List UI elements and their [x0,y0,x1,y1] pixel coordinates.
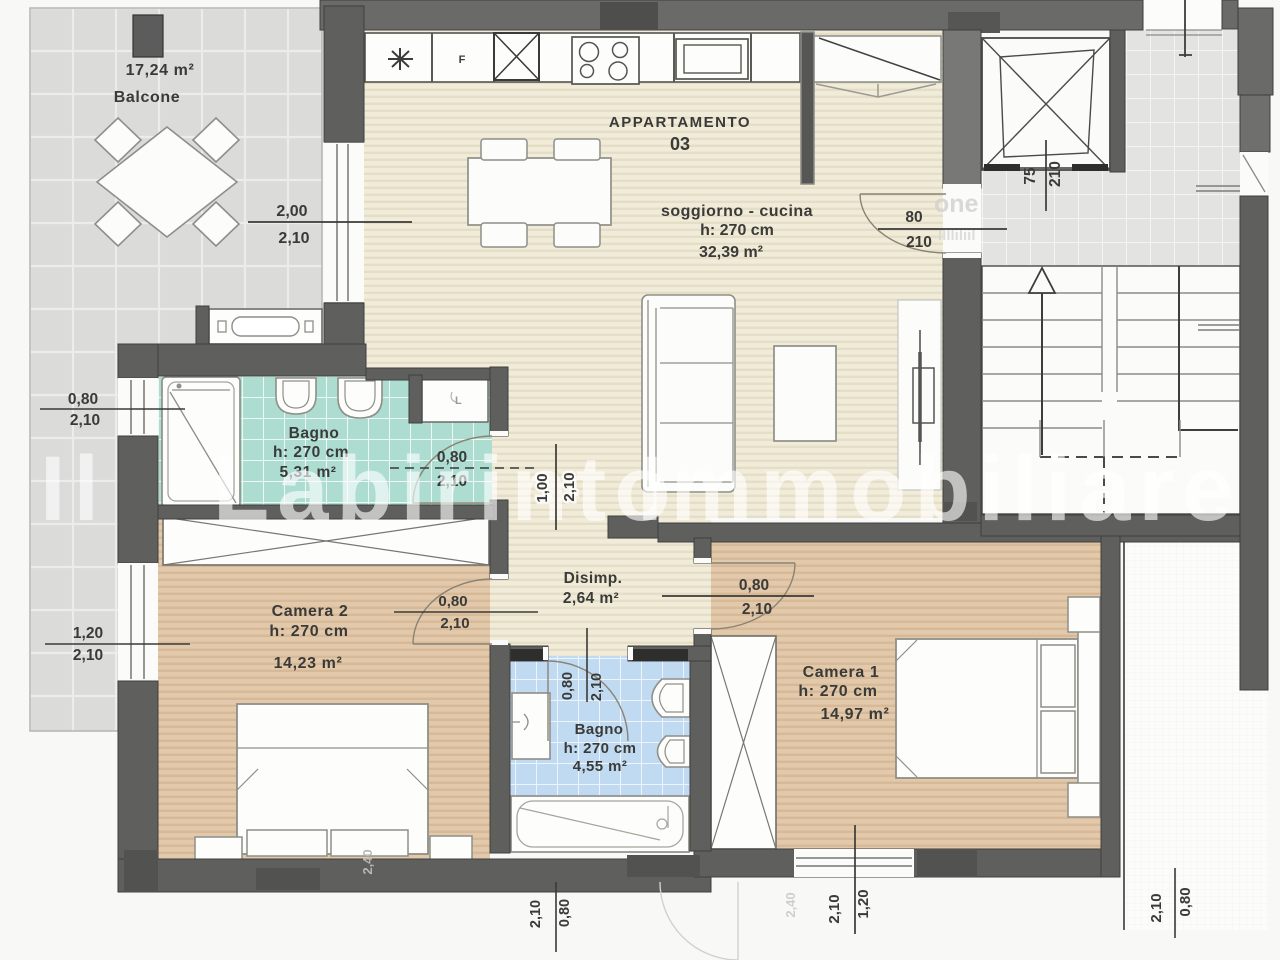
svg-text:14,97 m²: 14,97 m² [821,706,890,723]
svg-text:h: 270 cm: h: 270 cm [798,683,877,700]
svg-text:Camera 1: Camera 1 [803,664,880,681]
svg-text:soggiorno - cucina: soggiorno - cucina [661,203,813,220]
svg-text:0,80: 0,80 [438,593,467,610]
svg-text:2,40: 2,40 [783,892,798,917]
svg-text:2,10: 2,10 [589,673,605,701]
svg-text:Labirinto: Labirinto [213,438,679,540]
svg-text:Balcone: Balcone [114,89,180,106]
svg-text:h: 270 cm: h: 270 cm [700,222,774,239]
svg-text:Il: Il [40,438,107,540]
svg-text:2,10: 2,10 [440,615,469,632]
svg-text:14,23 m²: 14,23 m² [274,655,343,672]
svg-text:2,64 m²: 2,64 m² [563,590,619,607]
svg-text:32,39 m²: 32,39 m² [699,244,763,261]
svg-text:Camera 2: Camera 2 [272,603,349,620]
svg-text:0,80: 0,80 [560,672,576,700]
svg-text:80: 80 [905,209,922,226]
svg-text:0,80: 0,80 [68,391,98,408]
svg-text:4,55 m²: 4,55 m² [573,758,628,775]
svg-text:Immobiliare: Immobiliare [637,438,1241,540]
svg-text:03: 03 [670,134,690,154]
svg-text:F: F [459,54,466,66]
svg-text:0,80: 0,80 [557,899,573,927]
svg-text:1,00: 1,00 [534,473,551,502]
svg-text:1,20: 1,20 [855,889,872,918]
svg-text:75: 75 [1022,167,1039,185]
svg-text:2,10: 2,10 [528,900,544,928]
svg-text:2,10: 2,10 [278,230,309,247]
svg-text:h: 270 cm: h: 270 cm [564,740,637,757]
svg-text:2,40: 2,40 [360,849,375,874]
svg-text:2,10: 2,10 [1148,893,1165,922]
svg-text:210: 210 [906,234,932,251]
svg-text:17,24 m²: 17,24 m² [126,62,195,79]
svg-text:2,10: 2,10 [73,647,103,664]
svg-text:0,80: 0,80 [739,577,769,594]
svg-text:2,10: 2,10 [70,412,100,429]
svg-text:0,80: 0,80 [1177,887,1194,916]
svg-text:2,10: 2,10 [826,894,843,923]
svg-text:APPARTAMENTO: APPARTAMENTO [609,114,751,131]
svg-text:2,10: 2,10 [742,601,772,618]
svg-text:2,00: 2,00 [276,203,307,220]
svg-text:1,20: 1,20 [73,625,103,642]
svg-text:L: L [455,395,462,407]
svg-text:2,10: 2,10 [561,472,578,501]
svg-text:one: one [934,190,979,218]
svg-text:Bagno: Bagno [575,721,624,738]
svg-text:h: 270 cm: h: 270 cm [269,623,348,640]
svg-text:Disimp.: Disimp. [564,570,623,587]
svg-text:210: 210 [1047,161,1064,187]
